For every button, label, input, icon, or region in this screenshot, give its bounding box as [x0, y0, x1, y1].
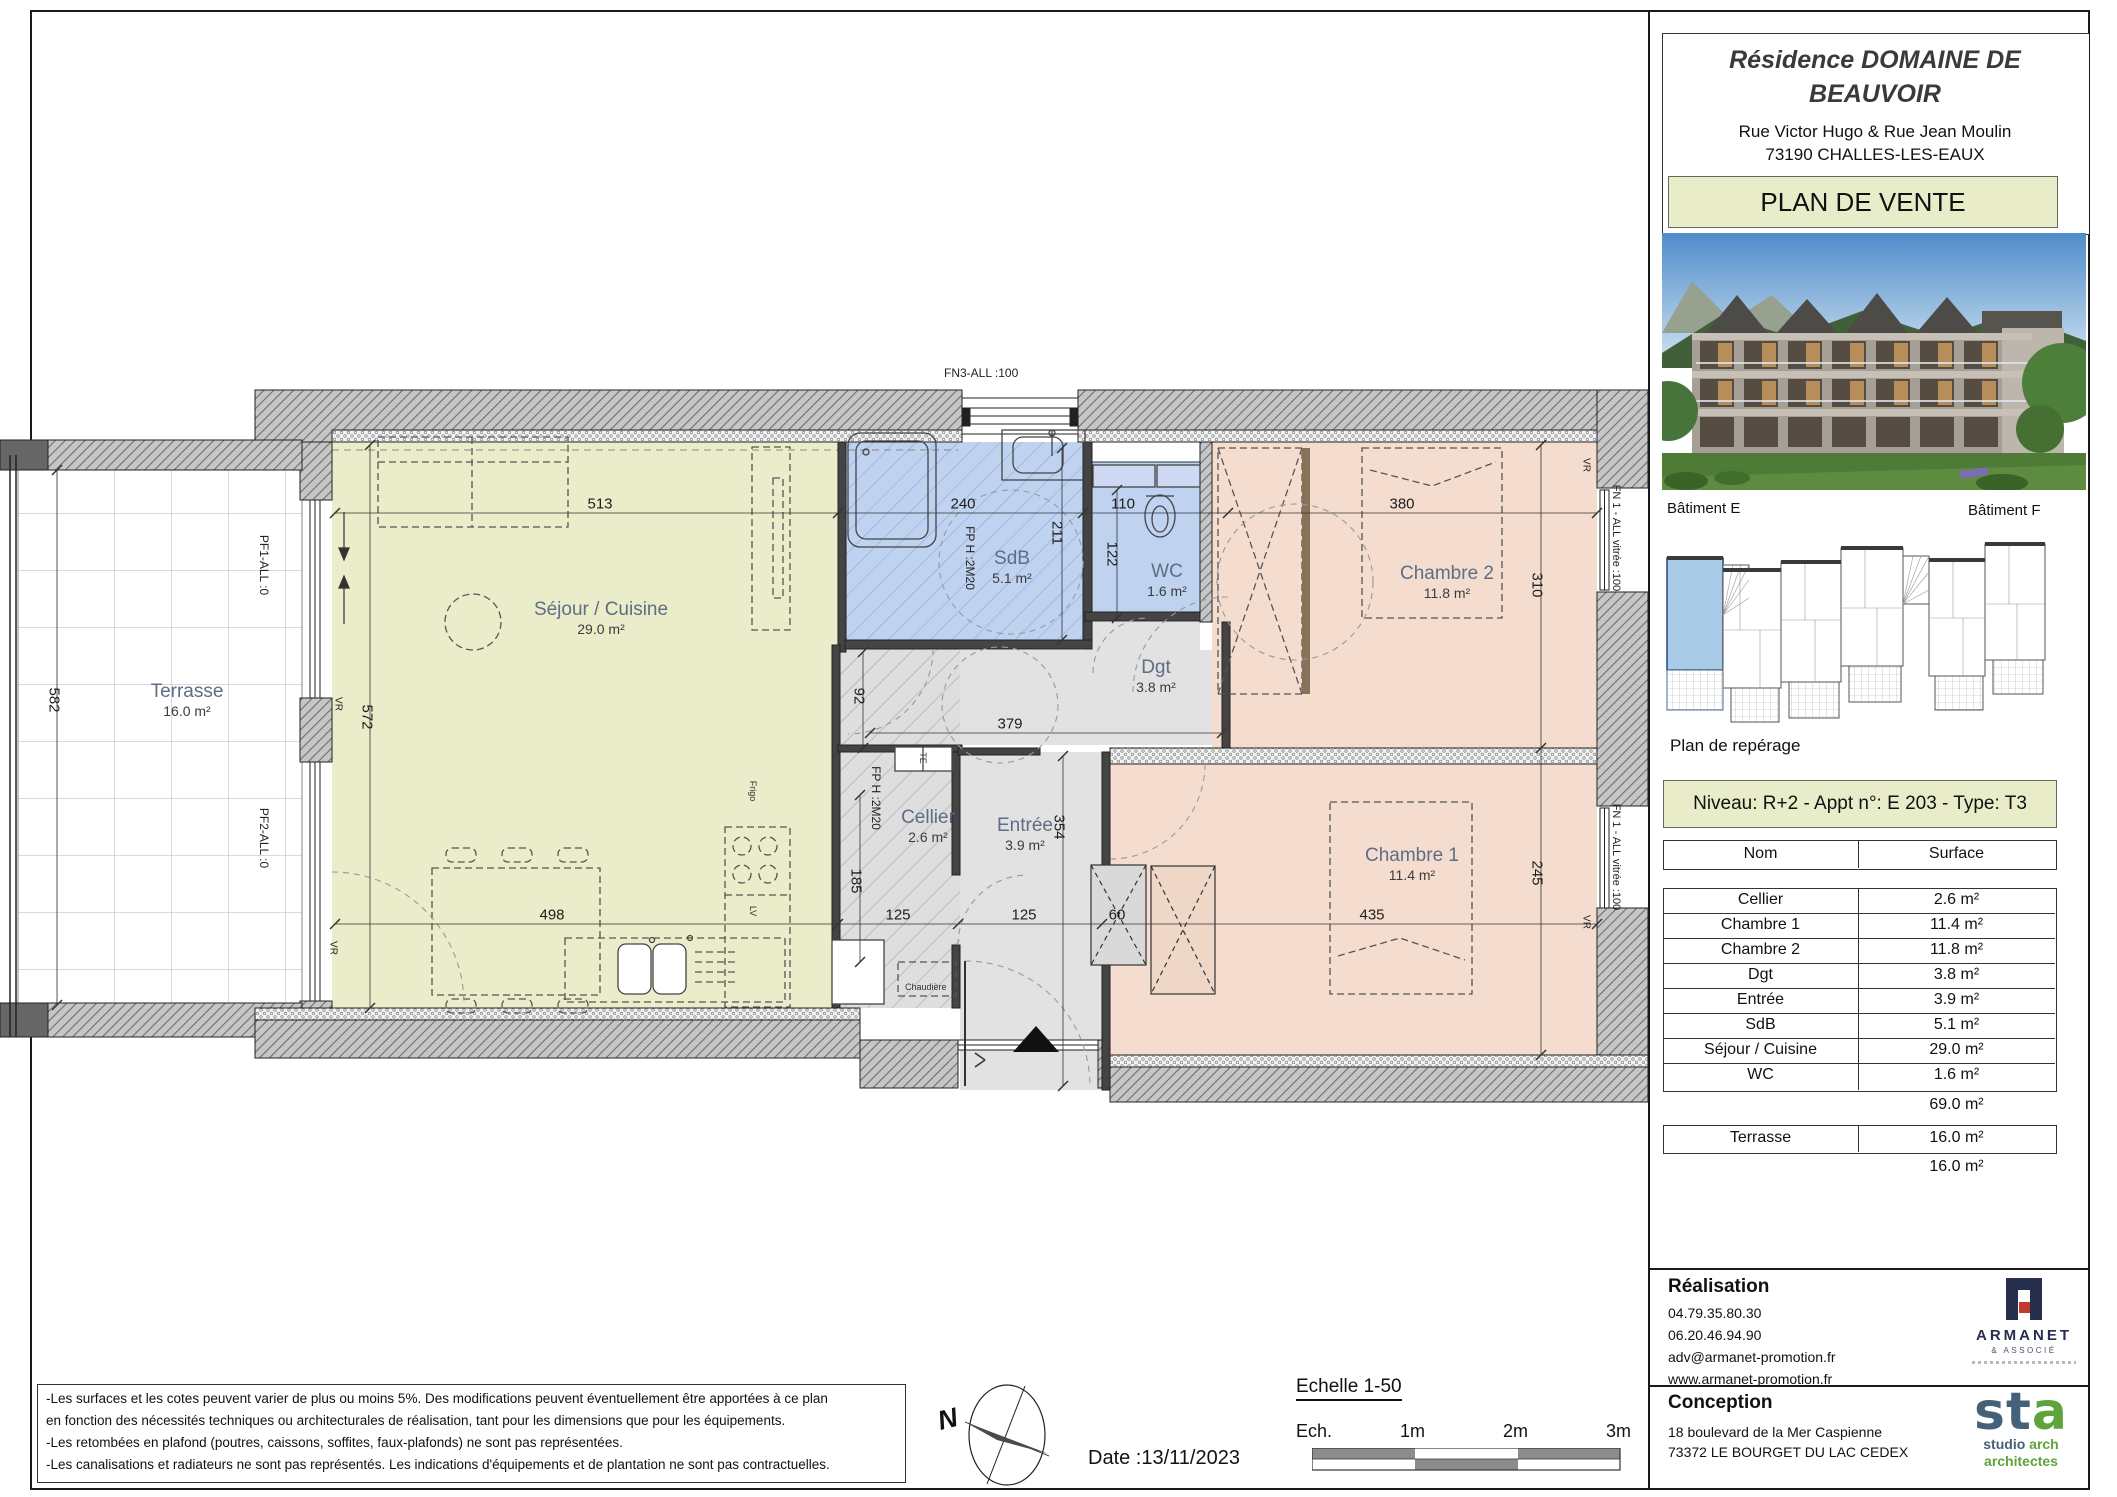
room-label-cellier: Cellier2.6 m² — [901, 807, 955, 845]
realisation-phone1: 04.79.35.80.30 — [1668, 1305, 1761, 1321]
shutter-label-vr-1: VR — [333, 697, 344, 711]
notes-line3: -Les retombées en plafond (poutres, cais… — [46, 1435, 623, 1450]
table-row-name: Chambre 1 — [1663, 916, 1858, 934]
scale-tick-1m: 1m — [1400, 1421, 1425, 1442]
terrasse-total: 16.0 m² — [1858, 1158, 2055, 1176]
notes-line4: -Les canalisations et radiateurs ne sont… — [46, 1457, 830, 1472]
scale-title: Echelle 1-50 — [1296, 1376, 1402, 1401]
dim-entree-h: 354 — [1051, 814, 1068, 839]
dim-ch1-w: 435 — [1359, 907, 1384, 924]
compass-icon — [935, 1372, 1080, 1497]
notes-line1: -Les surfaces et les cotes peuvent varie… — [46, 1391, 828, 1406]
appliance-label-chaudiere: Chaudière — [905, 982, 947, 992]
shutter-label-vr-2: VR — [328, 941, 339, 955]
table-row-name: WC — [1663, 1066, 1858, 1084]
dim-sejour-h: 572 — [359, 704, 376, 729]
dim-sejour-w: 513 — [587, 496, 612, 513]
date-label: Date :13/11/2023 — [1088, 1447, 1240, 1470]
wardrobe-strip — [1302, 448, 1310, 694]
realisation-phone2: 06.20.46.94.90 — [1668, 1327, 1761, 1343]
shutter-label-vr-4: VR — [1581, 915, 1592, 929]
room-label-sdb: SdB5.1 m² — [992, 548, 1032, 586]
dim-ch2-w: 380 — [1389, 496, 1414, 513]
window-label-pf2: PF2-ALL :0 — [257, 808, 271, 868]
surface-col-name: Nom — [1663, 845, 1858, 863]
dim-cellier-h: 185 — [848, 868, 865, 893]
table-row-surface: 11.4 m² — [1858, 916, 2055, 934]
table-row-name: Chambre 2 — [1663, 941, 1858, 959]
sta-logo: sta studio arch architectes — [1956, 1388, 2086, 1486]
residence-title-line2: BEAUVOIR — [1662, 80, 2088, 109]
ceiling-label-sdb: FP H :2M20 — [963, 526, 977, 590]
dim-dgt-w: 379 — [997, 716, 1022, 733]
table-row-name: Séjour / Cuisine — [1663, 1041, 1858, 1059]
window-label-fn1-ch2: FN 1 - ALL vitrée :100 — [1610, 485, 1622, 592]
sidebar-divider — [1648, 10, 1650, 1488]
scale-ech-label: Ech. — [1296, 1421, 1332, 1442]
residence-address-line2: 73190 CHALLES-LES-EAUX — [1662, 145, 2088, 165]
armanet-logo-mark — [1962, 1272, 2086, 1322]
window-label-pf1: PF1-ALL :0 — [257, 535, 271, 595]
appliance-label-lv: LV — [748, 906, 758, 916]
terrasse-row-name: Terrasse — [1663, 1129, 1858, 1147]
room-label-chambre1: Chambre 111.4 m² — [1365, 845, 1459, 883]
table-row-surface: 2.6 m² — [1858, 891, 2055, 909]
room-label-chambre2: Chambre 211.8 m² — [1400, 563, 1494, 601]
dim-cellier-w: 125 — [885, 907, 910, 924]
dim-ch1-h: 245 — [1529, 860, 1546, 885]
conception-address1: 18 boulevard de la Mer Caspienne — [1668, 1424, 1882, 1440]
ceiling-label-cellier: FP H :2M20 — [869, 766, 883, 830]
unit-banner: Niveau: R+2 - Appt n°: E 203 - Type: T3 — [1663, 780, 2057, 828]
room-label-entree: Entrée3.9 m² — [997, 815, 1053, 853]
table-row-surface: 29.0 m² — [1858, 1041, 2055, 1059]
appliance-label-frigo: Frigo — [748, 781, 758, 802]
table-row-name: Cellier — [1663, 891, 1858, 909]
appliance-label-te: TE — [918, 752, 928, 764]
table-row-surface: 3.8 m² — [1858, 966, 2055, 984]
dim-sdb-w: 240 — [950, 496, 975, 513]
dim-ch2-h: 310 — [1529, 572, 1546, 597]
surface-col-surface: Surface — [1858, 845, 2055, 863]
table-row-surface: 5.1 m² — [1858, 1016, 2055, 1034]
table-row-name: Dgt — [1663, 966, 1858, 984]
window-label-fn3: FN3-ALL :100 — [944, 366, 1018, 380]
table-row-surface: 3.9 m² — [1858, 991, 2055, 1009]
notes-line2: en fonction des nécessités techniques ou… — [46, 1413, 785, 1428]
plan-de-vente-banner: PLAN DE VENTE — [1668, 176, 2058, 228]
plan-de-vente-sheet: FN3-ALL :100 Terrasse16.0 m² Séjour / Cu… — [0, 0, 2117, 1497]
surface-total: 69.0 m² — [1858, 1096, 2055, 1114]
table-row-name: SdB — [1663, 1016, 1858, 1034]
scale-tick-2m: 2m — [1503, 1421, 1528, 1442]
room-label-wc: WC1.6 m² — [1147, 561, 1187, 599]
dim-sdb-h: 211 — [1049, 521, 1066, 545]
shutter-label-vr-3: VR — [1581, 458, 1592, 472]
realisation-heading: Réalisation — [1668, 1276, 1769, 1298]
table-row-name: Entrée — [1663, 991, 1858, 1009]
realisation-email[interactable]: adv@armanet-promotion.fr — [1668, 1349, 1836, 1365]
dim-fp-strip: 92 — [851, 688, 868, 705]
dim-terrasse-h: 582 — [46, 687, 63, 712]
batiment-e-label: Bâtiment E — [1667, 500, 1740, 517]
locator-plan — [1665, 520, 2061, 732]
armanet-logo: ARMANET & ASSOCIÉ — [1962, 1272, 2086, 1380]
scale-bar — [1312, 1448, 1622, 1472]
table-row-surface: 11.8 m² — [1858, 941, 2055, 959]
residence-address-line1: Rue Victor Hugo & Rue Jean Moulin — [1662, 122, 2088, 142]
dim-entree-w: 125 — [1011, 907, 1036, 924]
conception-heading: Conception — [1668, 1392, 1773, 1414]
locator-caption: Plan de repérage — [1670, 736, 1800, 756]
dim-kitchen-w: 498 — [539, 907, 564, 924]
room-label-dgt: Dgt3.8 m² — [1136, 657, 1176, 695]
room-label-sejour: Séjour / Cuisine29.0 m² — [534, 599, 668, 637]
window-label-fn1-ch1: FN 1 - ALL vitrée :100 — [1610, 804, 1622, 911]
armanet-tagline — [1972, 1361, 2076, 1364]
room-label-terrasse: Terrasse16.0 m² — [151, 681, 224, 719]
scale-tick-3m: 3m — [1606, 1421, 1631, 1442]
conception-address2: 73372 LE BOURGET DU LAC CEDEX — [1668, 1444, 1908, 1460]
batiment-f-label: Bâtiment F — [1968, 502, 2041, 519]
dim-wc-w: 110 — [1111, 496, 1135, 513]
dim-placard-w: 60 — [1109, 907, 1126, 924]
dim-wc-h: 122 — [1104, 541, 1121, 566]
terrasse-row-surface: 16.0 m² — [1858, 1129, 2055, 1147]
residence-title-line1: Résidence DOMAINE DE — [1662, 46, 2088, 75]
table-row-surface: 1.6 m² — [1858, 1066, 2055, 1084]
building-render-image — [1662, 233, 2086, 490]
